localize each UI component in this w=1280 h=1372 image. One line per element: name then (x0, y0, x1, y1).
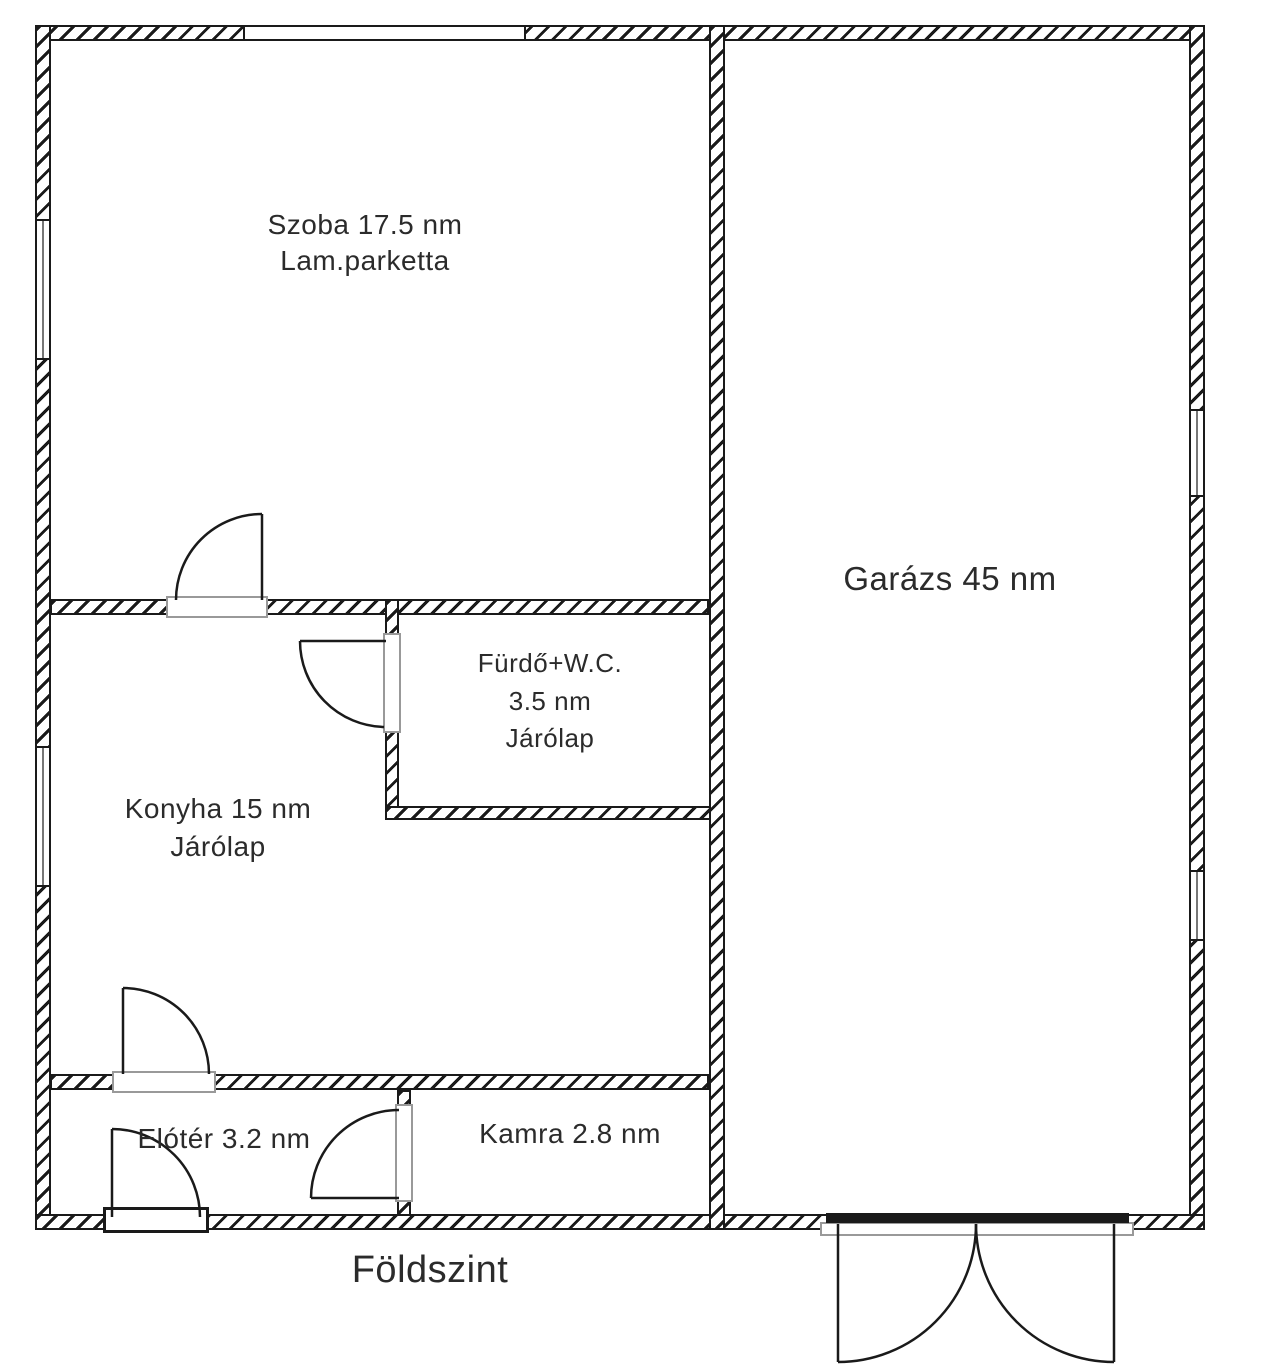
garage-door-right-arc (976, 1224, 1114, 1362)
plan-title-text: Földszint (270, 1246, 590, 1295)
szoba-floor: Lam.parketta (200, 243, 530, 279)
szoba-door-arc (176, 514, 262, 600)
szoba-name: Szoba 17.5 nm (200, 207, 530, 243)
konyha-name: Konyha 15 nm (58, 790, 378, 828)
eloter-name: Elótér 3.2 nm (108, 1121, 340, 1157)
furdo-area: 3.5 nm (425, 683, 675, 721)
furdo-floor: Járólap (425, 720, 675, 758)
room-label-garazs: Garázs 45 nm (780, 558, 1120, 601)
konyha-door-arc (123, 988, 209, 1074)
kamra-name: Kamra 2.8 nm (454, 1116, 686, 1152)
garage-door-left-arc (838, 1224, 976, 1362)
room-label-kamra: Kamra 2.8 nm (454, 1116, 686, 1152)
garazs-name: Garázs 45 nm (780, 558, 1120, 601)
furdo-name: Fürdő+W.C. (425, 645, 675, 683)
floor-plan: Szoba 17.5 nm Lam.parketta Garázs 45 nm … (0, 0, 1280, 1372)
room-label-konyha: Konyha 15 nm Járólap (58, 790, 378, 866)
konyha-floor: Járólap (58, 828, 378, 866)
room-label-szoba: Szoba 17.5 nm Lam.parketta (200, 207, 530, 280)
room-label-furdo: Fürdő+W.C. 3.5 nm Járólap (425, 645, 675, 758)
furdo-door-arc (300, 641, 384, 727)
room-label-eloter: Elótér 3.2 nm (108, 1121, 340, 1157)
plan-title: Földszint (270, 1246, 590, 1295)
